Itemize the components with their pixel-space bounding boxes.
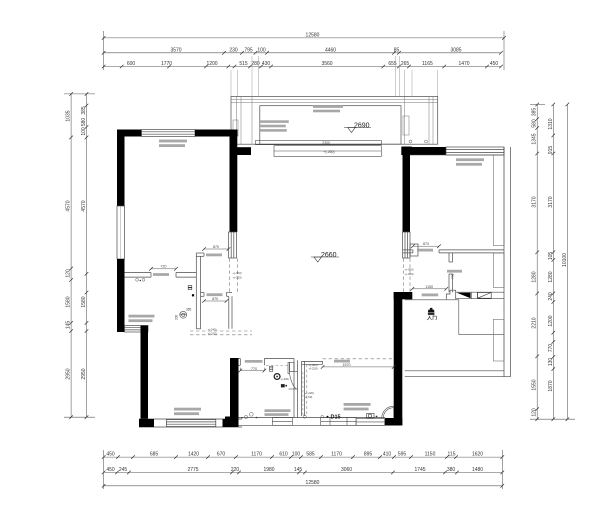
svg-text:1345: 1345 [532, 133, 538, 144]
svg-text:515: 515 [239, 61, 248, 67]
svg-text:1745: 1745 [414, 467, 425, 473]
svg-text:+(-220): +(-220) [405, 272, 414, 276]
svg-text:120: 120 [66, 269, 72, 278]
svg-text:1550: 1550 [532, 379, 538, 390]
svg-text:+(-260): +(-260) [323, 150, 334, 154]
svg-text:385: 385 [532, 108, 538, 117]
svg-text:4460: 4460 [325, 47, 336, 53]
svg-text:1870: 1870 [548, 380, 554, 391]
svg-text:580: 580 [532, 119, 538, 128]
svg-text:895: 895 [364, 451, 373, 457]
svg-text:+(-50): +(-50) [305, 395, 313, 399]
svg-text:115: 115 [448, 451, 456, 457]
svg-text:385: 385 [81, 106, 87, 115]
svg-text:12580: 12580 [306, 480, 320, 486]
svg-text:1980: 1980 [263, 467, 274, 473]
svg-text:670: 670 [217, 451, 226, 457]
svg-text:870: 870 [423, 242, 429, 246]
svg-text:1580: 1580 [66, 296, 72, 307]
svg-text:2950: 2950 [81, 368, 87, 379]
svg-text:1165: 1165 [422, 61, 433, 67]
svg-text:430: 430 [262, 61, 271, 67]
svg-text:770: 770 [451, 273, 455, 279]
svg-text:145: 145 [294, 467, 303, 473]
svg-text:450: 450 [106, 451, 115, 457]
svg-text:+(-220): +(-220) [208, 332, 217, 336]
svg-text:1035: 1035 [66, 110, 72, 121]
svg-text:870: 870 [212, 297, 218, 301]
svg-text:100: 100 [257, 47, 266, 53]
svg-text:+(-220): +(-220) [233, 275, 242, 279]
svg-text:3170: 3170 [532, 196, 538, 207]
svg-text:D15: D15 [331, 415, 341, 421]
svg-text:+(-430): +(-430) [281, 377, 290, 381]
svg-text:100: 100 [81, 127, 87, 136]
svg-text:245: 245 [119, 467, 128, 473]
svg-text:450: 450 [106, 467, 115, 473]
svg-text:870: 870 [213, 245, 219, 249]
svg-text:230: 230 [229, 47, 238, 53]
svg-text:120: 120 [532, 408, 538, 417]
svg-text:595: 595 [398, 451, 407, 457]
svg-text:1620: 1620 [472, 451, 483, 457]
svg-text:1150: 1150 [425, 451, 436, 457]
svg-text:4570: 4570 [66, 200, 72, 211]
svg-text:2210: 2210 [532, 317, 538, 328]
svg-text:3085: 3085 [450, 47, 461, 53]
svg-text:2300: 2300 [322, 141, 330, 145]
svg-text:795: 795 [244, 47, 253, 53]
svg-text:3060: 3060 [341, 467, 352, 473]
svg-text:1420: 1420 [188, 451, 199, 457]
svg-text:2775: 2775 [187, 467, 198, 473]
svg-text:3570: 3570 [170, 47, 181, 53]
svg-text:915: 915 [548, 146, 554, 155]
svg-text:130: 130 [548, 358, 554, 367]
svg-text:770: 770 [548, 344, 554, 353]
svg-text:580: 580 [81, 118, 87, 127]
svg-text:1280: 1280 [532, 271, 538, 282]
svg-text:200: 200 [175, 314, 179, 320]
svg-text:600: 600 [127, 61, 136, 67]
svg-text:450: 450 [490, 61, 499, 67]
svg-text:265: 265 [401, 61, 410, 67]
svg-text:85: 85 [394, 47, 400, 53]
svg-text:4570: 4570 [81, 200, 87, 211]
svg-text:2660: 2660 [321, 252, 337, 259]
svg-text:105: 105 [548, 252, 554, 261]
svg-text:770: 770 [251, 367, 257, 371]
svg-text:145: 145 [66, 321, 72, 330]
svg-text:365: 365 [186, 308, 192, 312]
svg-text:720: 720 [161, 265, 167, 269]
svg-text:1200: 1200 [206, 61, 217, 67]
svg-text:10100: 10100 [562, 253, 568, 267]
svg-text:1150: 1150 [425, 285, 433, 289]
svg-text:655: 655 [388, 61, 397, 67]
svg-text:1480: 1480 [472, 467, 483, 473]
svg-text:240: 240 [548, 292, 554, 301]
svg-text:1580: 1580 [81, 296, 87, 307]
svg-text:100: 100 [292, 451, 301, 457]
svg-text:3170: 3170 [548, 196, 554, 207]
svg-text:1310: 1310 [548, 118, 554, 129]
svg-text:1470: 1470 [458, 61, 469, 67]
svg-text:1770: 1770 [161, 61, 172, 67]
svg-text:2950: 2950 [66, 368, 72, 379]
svg-text:+(-220): +(-220) [309, 367, 318, 371]
svg-text:685: 685 [150, 451, 159, 457]
svg-text:610: 610 [279, 451, 288, 457]
svg-text:1170: 1170 [251, 451, 262, 457]
svg-text:220: 220 [231, 467, 240, 473]
svg-text:2690: 2690 [354, 123, 370, 130]
svg-text:380: 380 [447, 467, 456, 473]
svg-text:585: 585 [306, 451, 315, 457]
svg-text:12580: 12580 [306, 32, 320, 38]
svg-text:1570: 1570 [343, 363, 351, 367]
svg-text:3560: 3560 [321, 61, 332, 67]
svg-text:1280: 1280 [548, 271, 554, 282]
svg-text:1200: 1200 [548, 315, 554, 326]
svg-text:1170: 1170 [331, 451, 342, 457]
svg-text:410: 410 [383, 451, 392, 457]
